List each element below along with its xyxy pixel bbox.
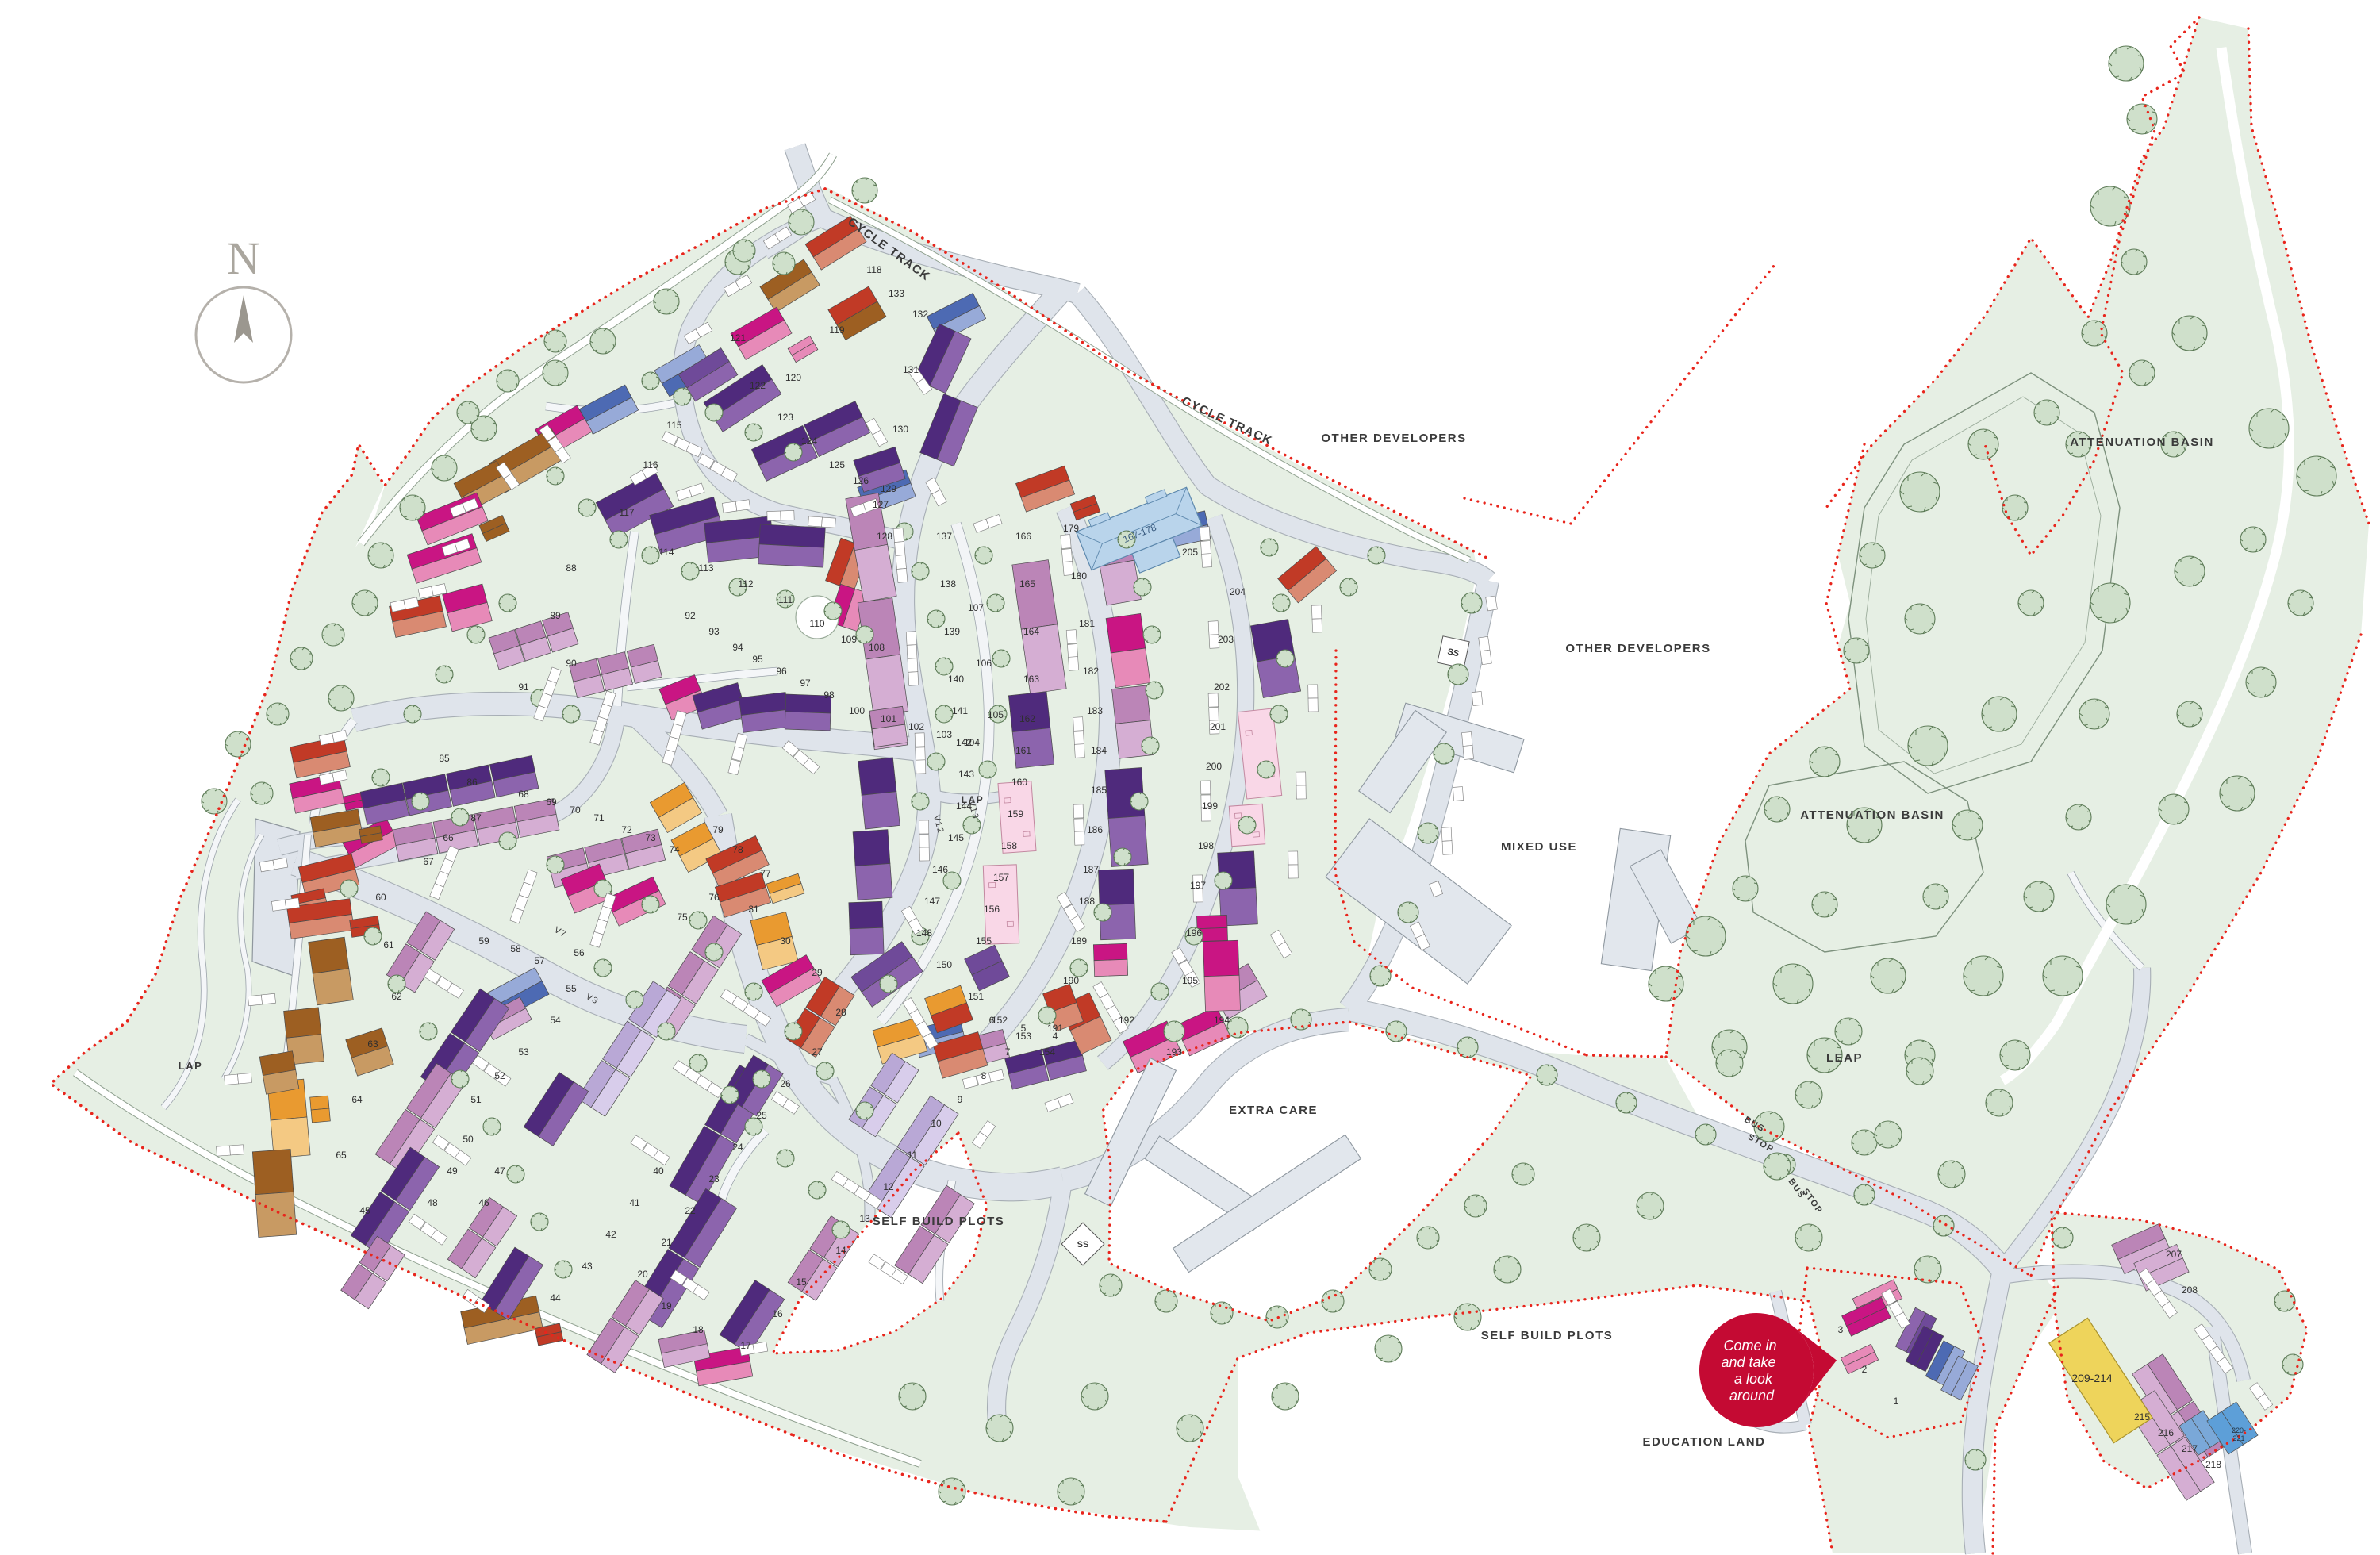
svg-text:126: 126 xyxy=(853,475,869,486)
svg-text:93: 93 xyxy=(708,626,720,637)
svg-text:EDUCATION LAND: EDUCATION LAND xyxy=(1643,1435,1766,1449)
svg-text:96: 96 xyxy=(776,666,787,677)
svg-text:144: 144 xyxy=(956,801,972,812)
svg-text:161: 161 xyxy=(1015,745,1031,756)
svg-text:27: 27 xyxy=(812,1046,823,1058)
svg-text:103: 103 xyxy=(936,729,952,740)
svg-text:147: 147 xyxy=(924,896,940,907)
svg-text:around: around xyxy=(1729,1388,1775,1403)
svg-text:138: 138 xyxy=(940,578,956,589)
svg-text:LAP: LAP xyxy=(178,1060,203,1072)
svg-text:112: 112 xyxy=(738,578,753,589)
svg-text:3: 3 xyxy=(1838,1324,1844,1335)
svg-text:73: 73 xyxy=(645,832,656,843)
svg-text:21: 21 xyxy=(661,1237,672,1248)
svg-text:20: 20 xyxy=(637,1269,648,1280)
svg-text:87: 87 xyxy=(470,812,482,824)
svg-text:OTHER DEVELOPERS: OTHER DEVELOPERS xyxy=(1321,432,1466,445)
svg-text:189: 189 xyxy=(1071,935,1087,946)
svg-text:115: 115 xyxy=(666,420,681,431)
svg-text:148: 148 xyxy=(916,927,932,939)
svg-text:100: 100 xyxy=(849,705,865,716)
svg-text:209-214: 209-214 xyxy=(2071,1372,2113,1384)
svg-text:203: 203 xyxy=(1218,634,1234,645)
svg-text:57: 57 xyxy=(534,955,545,966)
svg-text:102: 102 xyxy=(908,721,924,732)
svg-text:201: 201 xyxy=(1210,721,1226,732)
svg-text:160: 160 xyxy=(1011,777,1027,788)
svg-text:48: 48 xyxy=(427,1197,438,1208)
svg-text:95: 95 xyxy=(752,654,763,665)
svg-text:63: 63 xyxy=(367,1039,378,1050)
svg-text:105: 105 xyxy=(988,709,1004,720)
svg-text:88: 88 xyxy=(566,562,577,574)
svg-text:98: 98 xyxy=(823,689,835,701)
svg-text:SELF BUILD PLOTS: SELF BUILD PLOTS xyxy=(1481,1329,1614,1342)
svg-text:7: 7 xyxy=(1005,1046,1011,1058)
svg-text:60: 60 xyxy=(375,892,386,903)
svg-text:13: 13 xyxy=(859,1213,870,1224)
svg-text:54: 54 xyxy=(550,1015,561,1026)
svg-text:139: 139 xyxy=(944,626,960,637)
svg-text:N: N xyxy=(227,232,260,284)
svg-text:145: 145 xyxy=(948,832,964,843)
svg-text:90: 90 xyxy=(566,658,577,669)
svg-text:61: 61 xyxy=(383,939,394,950)
svg-text:17: 17 xyxy=(740,1340,751,1351)
svg-text:188: 188 xyxy=(1079,896,1095,907)
svg-text:108: 108 xyxy=(869,642,885,653)
svg-text:25: 25 xyxy=(756,1110,767,1121)
svg-text:107: 107 xyxy=(968,602,984,613)
svg-text:190: 190 xyxy=(1063,975,1079,986)
svg-text:12: 12 xyxy=(883,1181,894,1192)
svg-text:180: 180 xyxy=(1071,570,1087,582)
svg-text:70: 70 xyxy=(570,804,581,816)
svg-text:198: 198 xyxy=(1198,840,1214,851)
svg-text:67: 67 xyxy=(423,856,434,867)
svg-text:195: 195 xyxy=(1182,975,1198,986)
svg-text:142: 142 xyxy=(956,737,972,748)
svg-text:22: 22 xyxy=(685,1205,696,1216)
svg-text:43: 43 xyxy=(582,1261,593,1272)
svg-text:79: 79 xyxy=(712,824,724,835)
svg-text:165: 165 xyxy=(1019,578,1035,589)
svg-text:56: 56 xyxy=(574,947,585,958)
svg-text:218: 218 xyxy=(2205,1459,2221,1470)
svg-text:215: 215 xyxy=(2134,1411,2150,1423)
svg-text:ATTENUATION BASIN: ATTENUATION BASIN xyxy=(1800,808,1944,822)
svg-text:44: 44 xyxy=(550,1292,561,1304)
svg-text:66: 66 xyxy=(443,832,454,843)
svg-text:150: 150 xyxy=(936,959,952,970)
svg-text:205: 205 xyxy=(1182,547,1198,558)
svg-text:125: 125 xyxy=(829,459,845,470)
svg-text:117: 117 xyxy=(619,507,634,518)
svg-text:221: 221 xyxy=(2232,1434,2244,1442)
svg-text:8: 8 xyxy=(981,1070,987,1081)
svg-text:193: 193 xyxy=(1166,1046,1182,1058)
svg-text:28: 28 xyxy=(835,1007,846,1018)
svg-text:184: 184 xyxy=(1091,745,1107,756)
svg-text:59: 59 xyxy=(478,935,489,946)
svg-text:120: 120 xyxy=(785,372,801,383)
svg-text:151: 151 xyxy=(968,991,984,1002)
svg-text:50: 50 xyxy=(463,1134,474,1145)
svg-text:2: 2 xyxy=(1862,1364,1868,1375)
svg-text:58: 58 xyxy=(510,943,521,954)
svg-text:72: 72 xyxy=(621,824,632,835)
svg-text:146: 146 xyxy=(932,864,948,875)
svg-text:192: 192 xyxy=(1119,1015,1134,1026)
svg-text:86: 86 xyxy=(466,777,478,788)
svg-text:119: 119 xyxy=(829,324,844,336)
svg-text:187: 187 xyxy=(1083,864,1099,875)
svg-text:23: 23 xyxy=(708,1173,720,1184)
svg-text:121: 121 xyxy=(730,332,746,344)
svg-text:77: 77 xyxy=(760,868,771,879)
svg-text:41: 41 xyxy=(629,1197,640,1208)
svg-text:94: 94 xyxy=(732,642,743,653)
svg-text:116: 116 xyxy=(643,459,658,470)
svg-text:140: 140 xyxy=(948,674,964,685)
svg-text:SELF BUILD PLOTS: SELF BUILD PLOTS xyxy=(873,1215,1005,1228)
svg-text:24: 24 xyxy=(732,1142,743,1153)
svg-text:11: 11 xyxy=(908,1150,918,1161)
svg-text:130: 130 xyxy=(892,424,908,435)
svg-text:162: 162 xyxy=(1019,713,1035,724)
svg-text:62: 62 xyxy=(391,991,402,1002)
svg-text:97: 97 xyxy=(800,678,811,689)
svg-text:106: 106 xyxy=(976,658,992,669)
svg-text:124: 124 xyxy=(801,436,817,447)
svg-text:a look: a look xyxy=(1734,1371,1773,1387)
svg-text:1: 1 xyxy=(1894,1396,1899,1407)
svg-text:122: 122 xyxy=(750,380,766,391)
svg-text:137: 137 xyxy=(936,531,952,542)
svg-text:197: 197 xyxy=(1190,880,1206,891)
svg-text:EXTRA CARE: EXTRA CARE xyxy=(1229,1104,1318,1117)
svg-text:200: 200 xyxy=(1206,761,1222,772)
svg-text:182: 182 xyxy=(1083,666,1099,677)
svg-text:199: 199 xyxy=(1202,801,1218,812)
svg-text:89: 89 xyxy=(550,610,561,621)
svg-text:69: 69 xyxy=(546,797,557,808)
svg-text:153: 153 xyxy=(1015,1031,1031,1042)
svg-text:SS: SS xyxy=(1077,1240,1089,1250)
svg-text:LEAP: LEAP xyxy=(1826,1051,1863,1065)
svg-text:217: 217 xyxy=(2182,1443,2198,1454)
svg-text:143: 143 xyxy=(958,769,974,780)
svg-text:163: 163 xyxy=(1023,674,1039,685)
svg-text:159: 159 xyxy=(1008,808,1023,820)
svg-text:113: 113 xyxy=(698,562,713,574)
svg-text:42: 42 xyxy=(605,1229,616,1240)
svg-text:179: 179 xyxy=(1063,523,1079,534)
svg-text:110: 110 xyxy=(809,618,824,629)
svg-text:52: 52 xyxy=(494,1070,505,1081)
svg-text:40: 40 xyxy=(653,1165,664,1177)
svg-text:220-: 220- xyxy=(2232,1426,2246,1434)
svg-text:92: 92 xyxy=(685,610,696,621)
svg-text:133: 133 xyxy=(889,288,904,299)
svg-text:156: 156 xyxy=(984,904,1000,915)
svg-text:132: 132 xyxy=(912,309,928,320)
svg-text:118: 118 xyxy=(866,264,881,275)
svg-text:46: 46 xyxy=(478,1197,489,1208)
svg-text:51: 51 xyxy=(470,1094,482,1105)
svg-text:154: 154 xyxy=(1039,1046,1055,1058)
svg-text:185: 185 xyxy=(1091,785,1107,796)
svg-text:30: 30 xyxy=(780,935,791,946)
svg-text:196: 196 xyxy=(1186,927,1202,939)
svg-text:14: 14 xyxy=(835,1245,846,1256)
svg-text:186: 186 xyxy=(1087,824,1103,835)
svg-text:157: 157 xyxy=(993,872,1009,883)
svg-text:9: 9 xyxy=(958,1094,963,1105)
svg-text:53: 53 xyxy=(518,1046,529,1058)
svg-text:47: 47 xyxy=(494,1165,505,1177)
svg-text:194: 194 xyxy=(1214,1015,1230,1026)
svg-text:and take: and take xyxy=(1721,1354,1775,1370)
svg-text:68: 68 xyxy=(518,789,529,800)
svg-text:10: 10 xyxy=(931,1118,942,1129)
svg-text:64: 64 xyxy=(351,1094,363,1105)
svg-text:31: 31 xyxy=(748,904,759,915)
svg-text:Come in: Come in xyxy=(1723,1338,1776,1353)
svg-text:202: 202 xyxy=(1214,682,1230,693)
svg-text:204: 204 xyxy=(1230,586,1246,597)
svg-text:141: 141 xyxy=(952,705,968,716)
svg-text:109: 109 xyxy=(841,634,857,645)
svg-text:152: 152 xyxy=(992,1015,1008,1026)
svg-text:55: 55 xyxy=(566,983,577,994)
svg-text:127: 127 xyxy=(873,499,889,510)
svg-text:129: 129 xyxy=(881,483,896,494)
svg-text:164: 164 xyxy=(1023,626,1039,637)
svg-text:101: 101 xyxy=(881,713,896,724)
svg-text:131: 131 xyxy=(903,364,919,375)
svg-text:ATTENUATION BASIN: ATTENUATION BASIN xyxy=(2070,436,2214,449)
svg-text:155: 155 xyxy=(976,935,992,946)
svg-text:76: 76 xyxy=(708,892,720,903)
svg-text:208: 208 xyxy=(2182,1284,2198,1296)
svg-text:45: 45 xyxy=(359,1205,370,1216)
svg-text:85: 85 xyxy=(439,753,450,764)
svg-text:191: 191 xyxy=(1047,1023,1063,1034)
svg-text:78: 78 xyxy=(732,844,743,855)
svg-text:207: 207 xyxy=(2166,1249,2182,1260)
svg-text:74: 74 xyxy=(669,844,680,855)
svg-text:15: 15 xyxy=(796,1277,807,1288)
svg-text:29: 29 xyxy=(812,967,823,978)
svg-text:18: 18 xyxy=(693,1324,704,1335)
svg-text:65: 65 xyxy=(336,1150,347,1161)
svg-text:128: 128 xyxy=(877,531,892,542)
svg-text:19: 19 xyxy=(661,1300,672,1311)
svg-text:16: 16 xyxy=(772,1308,783,1319)
svg-text:71: 71 xyxy=(593,812,605,824)
svg-text:75: 75 xyxy=(677,912,688,923)
svg-text:216: 216 xyxy=(2158,1427,2174,1438)
svg-text:181: 181 xyxy=(1079,618,1095,629)
svg-text:MIXED USE: MIXED USE xyxy=(1501,840,1577,854)
svg-text:26: 26 xyxy=(780,1078,791,1089)
svg-text:123: 123 xyxy=(777,412,793,423)
svg-text:166: 166 xyxy=(1015,531,1031,542)
svg-text:114: 114 xyxy=(658,547,674,558)
svg-text:OTHER DEVELOPERS: OTHER DEVELOPERS xyxy=(1565,642,1710,655)
svg-text:183: 183 xyxy=(1087,705,1103,716)
svg-text:91: 91 xyxy=(518,682,529,693)
svg-text:158: 158 xyxy=(1001,840,1017,851)
svg-text:111: 111 xyxy=(778,594,793,605)
svg-text:49: 49 xyxy=(447,1165,458,1177)
